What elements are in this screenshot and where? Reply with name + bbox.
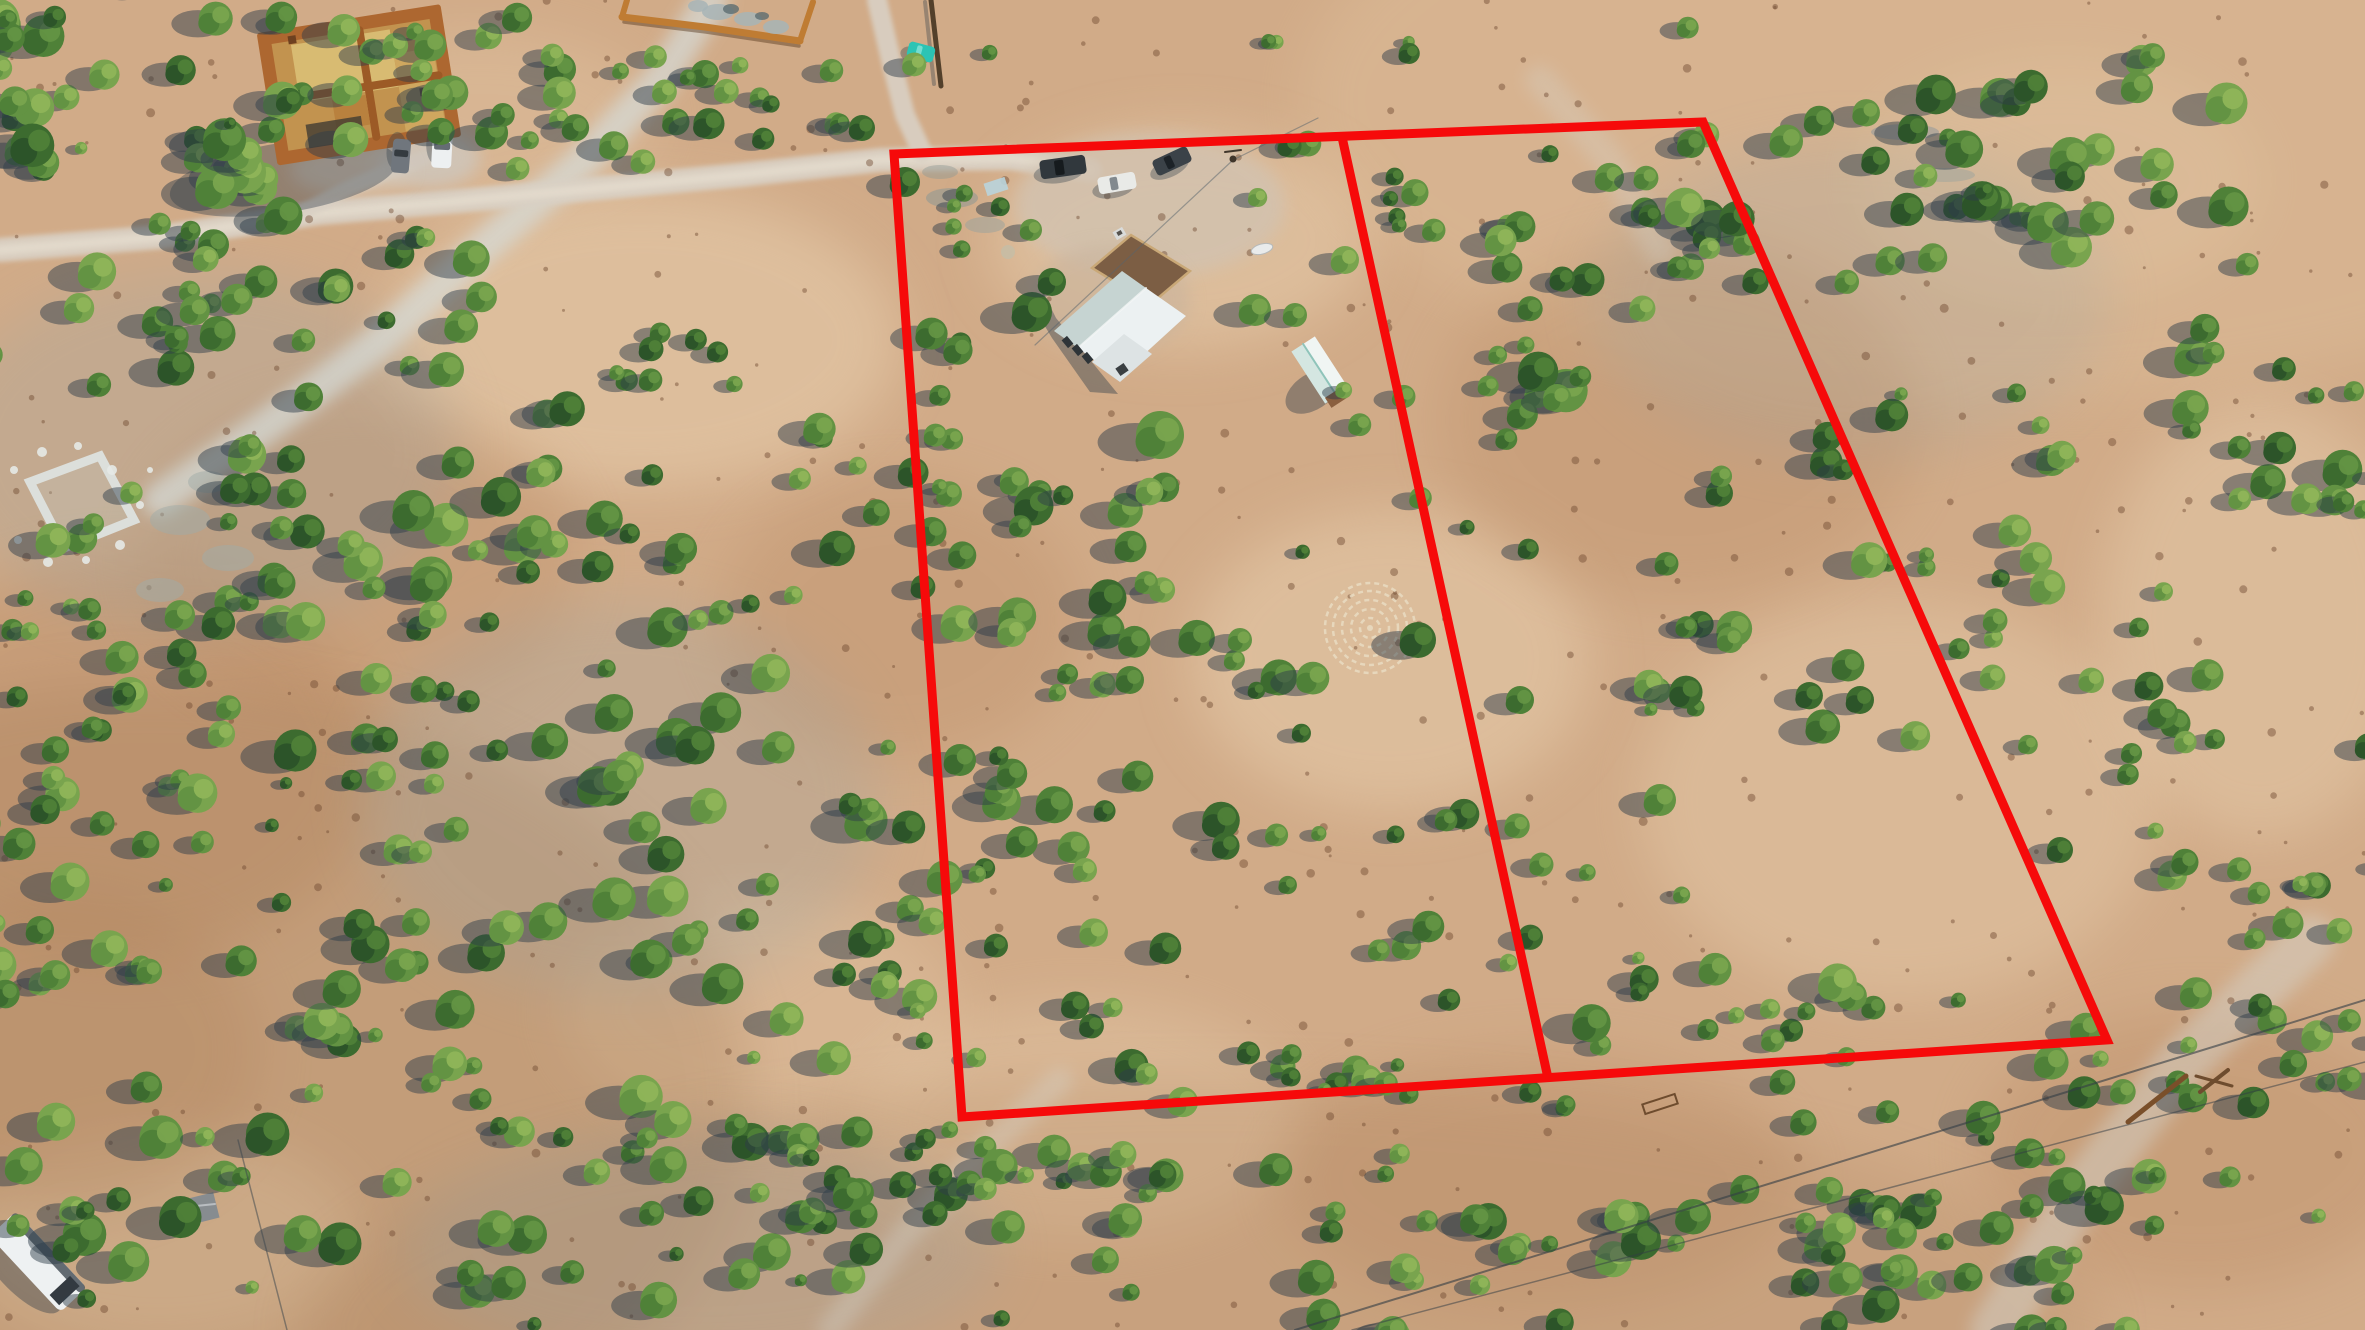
tree-canopy (863, 1237, 880, 1254)
ground-speck (181, 1110, 186, 1115)
juniper-tree (1057, 918, 1108, 948)
tree-canopy (2347, 1070, 2359, 1082)
tree-canopy (1618, 1204, 1635, 1221)
tree-canopy (1504, 256, 1519, 271)
ground-speck (400, 1008, 404, 1012)
ground-speck (1940, 304, 1949, 313)
tree-canopy (1845, 654, 1861, 670)
tree-canopy (2137, 620, 2147, 630)
tree-canopy (1012, 471, 1026, 485)
tree-canopy (2347, 1012, 2358, 1023)
tree-canopy (1844, 273, 1856, 285)
tree-canopy (28, 625, 37, 634)
tree-canopy (1524, 339, 1533, 348)
tree-canopy (2092, 1188, 2102, 1198)
juniper-tree (913, 385, 951, 407)
tree-canopy (1394, 828, 1403, 837)
shape (984, 177, 1009, 196)
ground-speck (2046, 809, 2052, 815)
juniper-tree (899, 860, 963, 897)
juniper-tree (932, 218, 961, 235)
ground-speck (675, 382, 679, 386)
tree-canopy (1342, 250, 1356, 264)
ground-speck (1689, 295, 1696, 302)
ground-speck (2258, 830, 2262, 834)
tree-canopy (1719, 469, 1730, 480)
juniper-tree (735, 128, 775, 151)
ground-speck (1993, 143, 1998, 148)
ground-speck (1329, 854, 1332, 857)
tree-canopy (454, 820, 466, 832)
ground-speck (771, 648, 776, 653)
ground-speck (288, 692, 291, 695)
juniper-tree (2295, 387, 2324, 404)
shape (147, 467, 153, 473)
ground-speck (543, 267, 548, 272)
ground-speck (1494, 26, 1498, 30)
ground-speck (893, 1033, 901, 1041)
tree-canopy (1377, 942, 1388, 953)
shape (800, 2, 813, 41)
tree-canopy (515, 160, 527, 172)
shape (150, 505, 210, 535)
tree-canopy (650, 467, 661, 478)
ground-speck (1306, 869, 1315, 878)
tree-canopy (1160, 581, 1173, 594)
tree-canopy (2304, 488, 2319, 503)
ground-speck (1246, 1020, 1251, 1025)
juniper-tree (1299, 826, 1326, 842)
tree-canopy (116, 1191, 128, 1203)
tree-canopy (601, 506, 619, 524)
tree-canopy (2012, 519, 2028, 535)
tree-canopy (214, 321, 232, 339)
tree-canopy (2055, 1151, 2063, 1159)
tree-canopy (194, 779, 214, 799)
tree-canopy (994, 937, 1006, 949)
ground-speck (206, 680, 213, 687)
ground-speck (1207, 702, 1214, 709)
tree-canopy (2099, 1053, 2107, 1061)
tree-canopy (503, 915, 520, 932)
juniper-tree (1351, 939, 1390, 962)
tree-canopy (2072, 1249, 2081, 1258)
tree-canopy (1517, 215, 1533, 231)
tree-canopy (399, 953, 416, 970)
tree-canopy (960, 545, 974, 559)
tree-canopy (1238, 631, 1250, 643)
ground-speck (1675, 578, 1681, 584)
ground-speck (389, 1230, 395, 1236)
tree-canopy (2238, 491, 2249, 502)
ground-speck (206, 1243, 212, 1249)
ground-speck (113, 291, 121, 299)
tree-canopy (479, 286, 494, 301)
tree-canopy (696, 1190, 711, 1205)
tree-canopy (686, 72, 694, 80)
tree-canopy (933, 427, 945, 439)
juniper-tree (626, 45, 667, 69)
ground-speck (667, 234, 671, 238)
ground-speck (1304, 1176, 1311, 1183)
ground-speck (1621, 1320, 1628, 1327)
juniper-tree (1249, 34, 1276, 50)
ground-speck (1924, 280, 1930, 286)
ground-speck (2270, 792, 2277, 799)
ground-speck (2086, 368, 2092, 374)
ground-speck (2200, 253, 2206, 259)
tree-canopy (501, 106, 513, 118)
tree-canopy (662, 83, 674, 95)
tree-canopy (1771, 1032, 1783, 1044)
tree-canopy (1009, 763, 1024, 778)
tree-canopy (443, 684, 453, 694)
tree-canopy (2067, 166, 2082, 181)
tree-canopy (950, 431, 961, 442)
ground-speck (326, 830, 329, 833)
tree-canopy (924, 1132, 934, 1142)
ground-speck (1022, 98, 1030, 106)
tree-canopy (997, 749, 1007, 759)
tree-canopy (215, 611, 232, 628)
tree-canopy (172, 354, 190, 372)
tree-canopy (665, 1151, 683, 1169)
ground-speck (2087, 1, 2090, 4)
tree-canopy (1899, 1223, 1914, 1238)
ground-speck (532, 1065, 538, 1071)
tree-canopy (1402, 1258, 1417, 1273)
ground-speck (2320, 181, 2328, 189)
ground-speck (1579, 554, 1587, 562)
ground-speck (810, 458, 817, 465)
juniper-tree (1783, 1002, 1815, 1021)
tree-canopy (177, 604, 192, 619)
ground-speck (2143, 266, 2146, 269)
tree-canopy (427, 34, 443, 50)
tree-canopy (189, 224, 199, 234)
tree-canopy (1586, 866, 1594, 874)
tree-canopy (285, 779, 291, 785)
tree-canopy (66, 868, 85, 887)
ground-speck (1029, 81, 1034, 86)
tree-canopy (1992, 631, 2001, 640)
tree-canopy (280, 896, 290, 906)
tree-canopy (649, 1204, 661, 1216)
tree-canopy (1923, 167, 1935, 179)
ground-speck (208, 371, 216, 379)
tree-canopy (2089, 671, 2102, 684)
tree-canopy (1637, 953, 1643, 959)
tree-canopy (1728, 630, 1741, 643)
tree-canopy (1877, 1291, 1896, 1310)
tree-canopy (88, 601, 99, 612)
tree-canopy (1836, 1217, 1853, 1234)
shape (107, 465, 117, 475)
tree-canopy (1313, 1265, 1331, 1283)
tree-canopy (662, 841, 680, 859)
tree-canopy (649, 340, 661, 352)
ground-speck (2360, 711, 2364, 715)
juniper-tree (131, 213, 171, 236)
ground-speck (1873, 938, 1880, 945)
ground-speck (2135, 146, 2140, 151)
tree-canopy (51, 769, 63, 781)
ground-speck (2257, 251, 2261, 255)
tree-canopy (1131, 630, 1147, 646)
ground-speck (1200, 696, 1206, 702)
ground-speck (1288, 583, 1295, 590)
ground-speck (1968, 357, 1976, 365)
tree-canopy (212, 6, 229, 23)
tree-canopy (1768, 1002, 1778, 1012)
ground-speck (1528, 1290, 1533, 1295)
tree-canopy (1407, 46, 1418, 57)
tree-canopy (2299, 878, 2307, 886)
tree-canopy (478, 1091, 489, 1102)
tree-canopy (129, 485, 140, 496)
tree-canopy (6, 12, 16, 22)
juniper-tree (302, 14, 361, 48)
tree-canopy (1408, 38, 1414, 44)
tree-canopy (1783, 129, 1800, 146)
tree-canopy (1193, 625, 1211, 643)
juniper-tree (2144, 390, 2209, 428)
tree-canopy (734, 1117, 745, 1128)
tree-canopy (1466, 522, 1473, 529)
juniper-tree (2155, 977, 2212, 1010)
ground-speck (212, 74, 217, 79)
juniper-tree (1858, 1100, 1899, 1124)
tree-canopy (95, 623, 105, 633)
tree-canopy (219, 724, 232, 737)
juniper-tree (241, 2, 298, 35)
tree-canopy (765, 876, 776, 887)
ground-speck (2089, 740, 2092, 743)
tree-canopy (336, 1228, 357, 1249)
ground-speck (2247, 432, 2252, 437)
tree-canopy (1664, 555, 1676, 567)
tree-canopy (37, 920, 51, 934)
ground-speck (823, 148, 827, 152)
shape (10, 466, 18, 474)
ground-speck (984, 963, 989, 968)
tree-canopy (1162, 937, 1178, 953)
ground-speck (310, 680, 318, 688)
tree-canopy (1641, 969, 1655, 983)
shed-body (1263, 336, 1353, 428)
ground-speck (305, 215, 313, 223)
tree-canopy (1931, 1191, 1940, 1200)
tree-canopy (2033, 547, 2049, 563)
tree-canopy (251, 477, 268, 494)
ground-speck (866, 159, 873, 166)
tree-canopy (280, 519, 292, 531)
ground-speck (679, 580, 685, 586)
ground-speck (1956, 794, 1963, 801)
tree-canopy (2026, 738, 2036, 748)
tree-canopy (1560, 270, 1573, 283)
ground-speck (995, 924, 1004, 933)
tree-canopy (929, 521, 944, 536)
sand-tone-patch (1590, 140, 2110, 460)
ground-speck (530, 953, 535, 958)
tree-canopy (1857, 690, 1871, 704)
ground-speck (298, 836, 302, 840)
tree-canopy (552, 535, 565, 548)
tree-canopy (269, 120, 282, 133)
tree-canopy (495, 742, 506, 753)
ground-speck (1239, 859, 1248, 868)
tree-canopy (7, 27, 22, 42)
ground-speck (1092, 16, 1100, 24)
tree-canopy (938, 388, 949, 399)
ground-speck (1087, 653, 1094, 660)
tree-canopy (374, 1030, 381, 1037)
tree-canopy (1342, 384, 1350, 392)
ground-speck (1247, 228, 1251, 232)
ground-speck (1299, 1021, 1308, 1030)
ground-speck (1354, 646, 1358, 650)
ground-speck (1361, 867, 1369, 875)
tree-canopy (1510, 1240, 1525, 1255)
tree-canopy (1478, 1278, 1488, 1288)
tree-canopy (2222, 88, 2243, 109)
tree-canopy (106, 935, 124, 953)
tree-canopy (1051, 791, 1070, 810)
tree-canopy (834, 536, 852, 554)
juniper-tree (48, 252, 116, 292)
juniper-tree (1247, 823, 1288, 847)
tree-canopy (960, 243, 969, 252)
aerial-scene-canvas (0, 0, 2365, 1330)
tree-canopy (1051, 1139, 1068, 1156)
ground-speck (799, 1106, 807, 1114)
tree-canopy (280, 202, 299, 221)
tree-canopy (1807, 686, 1821, 700)
ground-speck (2142, 34, 2147, 39)
tree-canopy (1147, 482, 1161, 496)
juniper-tree (1634, 703, 1657, 717)
juniper-tree (1098, 411, 1184, 461)
tree-canopy (1957, 995, 1964, 1002)
shape (136, 578, 184, 602)
tree-canopy (176, 1202, 197, 1223)
tree-canopy (304, 519, 321, 536)
tree-canopy (1334, 1204, 1344, 1214)
tree-canopy (2187, 1039, 2195, 1047)
ground-speck (1419, 716, 1427, 724)
tree-canopy (669, 1106, 687, 1124)
juniper-tree (976, 197, 1010, 217)
ground-speck (543, 0, 551, 5)
ground-speck (396, 790, 401, 795)
tree-canopy (685, 928, 701, 944)
tree-canopy (1061, 488, 1071, 498)
tree-canopy (302, 607, 321, 626)
ground-speck (378, 235, 383, 240)
tree-canopy (1275, 37, 1282, 44)
tree-canopy (594, 1162, 607, 1175)
ground-speck (948, 366, 952, 370)
ground-speck (2348, 273, 2352, 277)
tree-canopy (905, 815, 921, 831)
tree-canopy (809, 1152, 817, 1160)
ground-speck (2028, 970, 2035, 977)
ground-speck (1456, 1187, 1460, 1191)
ground-speck (2194, 637, 2203, 646)
tree-canopy (227, 515, 236, 524)
tree-canopy (717, 698, 737, 718)
vehicle-glass (394, 149, 409, 157)
ground-speck (1862, 352, 1871, 361)
ground-speck (1645, 271, 1648, 274)
tree-canopy (1071, 836, 1087, 852)
shape (43, 557, 53, 567)
ground-speck (1347, 304, 1356, 313)
tree-canopy (2211, 345, 2222, 356)
juniper-tree (142, 55, 196, 87)
tree-canopy (318, 1008, 336, 1026)
juniper-tree (2328, 381, 2364, 402)
tree-canopy (409, 496, 430, 517)
ground-speck (314, 804, 322, 812)
juniper-tree (890, 318, 948, 352)
tree-canopy (158, 216, 169, 227)
ground-speck (791, 145, 797, 151)
tree-canopy (830, 1046, 847, 1063)
juniper-tree (771, 468, 810, 491)
ground-speck (1093, 895, 1099, 901)
ground-speck (1787, 254, 1792, 259)
shape (202, 545, 254, 571)
ground-speck (765, 452, 771, 458)
ground-speck (592, 71, 599, 78)
ground-speck (15, 235, 19, 239)
ground-speck (1053, 1274, 1057, 1278)
ground-speck (923, 1088, 927, 1092)
ground-speck (2239, 585, 2247, 593)
tree-canopy (916, 984, 933, 1001)
ground-speck (550, 963, 555, 968)
tree-canopy (1135, 765, 1151, 781)
tree-canopy (653, 48, 664, 59)
ground-speck (391, 7, 396, 12)
tree-canopy (1684, 619, 1695, 630)
tree-canopy (2044, 574, 2062, 592)
tree-canopy (299, 1220, 318, 1239)
tree-canopy (2315, 390, 2323, 398)
ground-speck (766, 900, 772, 906)
ground-speck (1186, 975, 1190, 979)
tree-canopy (349, 534, 362, 547)
tree-canopy (1515, 817, 1528, 830)
tree-canopy (996, 1154, 1014, 1172)
tree-canopy (983, 1181, 994, 1192)
tree-canopy (1473, 1209, 1489, 1225)
juniper-tree (1938, 1101, 2000, 1137)
tree-canopy (887, 742, 895, 750)
tree-canopy (867, 801, 878, 812)
tree-canopy (1267, 36, 1274, 43)
tree-canopy (645, 1130, 656, 1141)
ground-speck (1491, 1094, 1498, 1101)
juniper-tree (981, 826, 1038, 859)
juniper-tree (65, 60, 119, 92)
ground-speck (1030, 333, 1034, 337)
ground-speck (357, 282, 365, 290)
tree-canopy (874, 503, 887, 516)
ground-speck (1823, 522, 1831, 530)
